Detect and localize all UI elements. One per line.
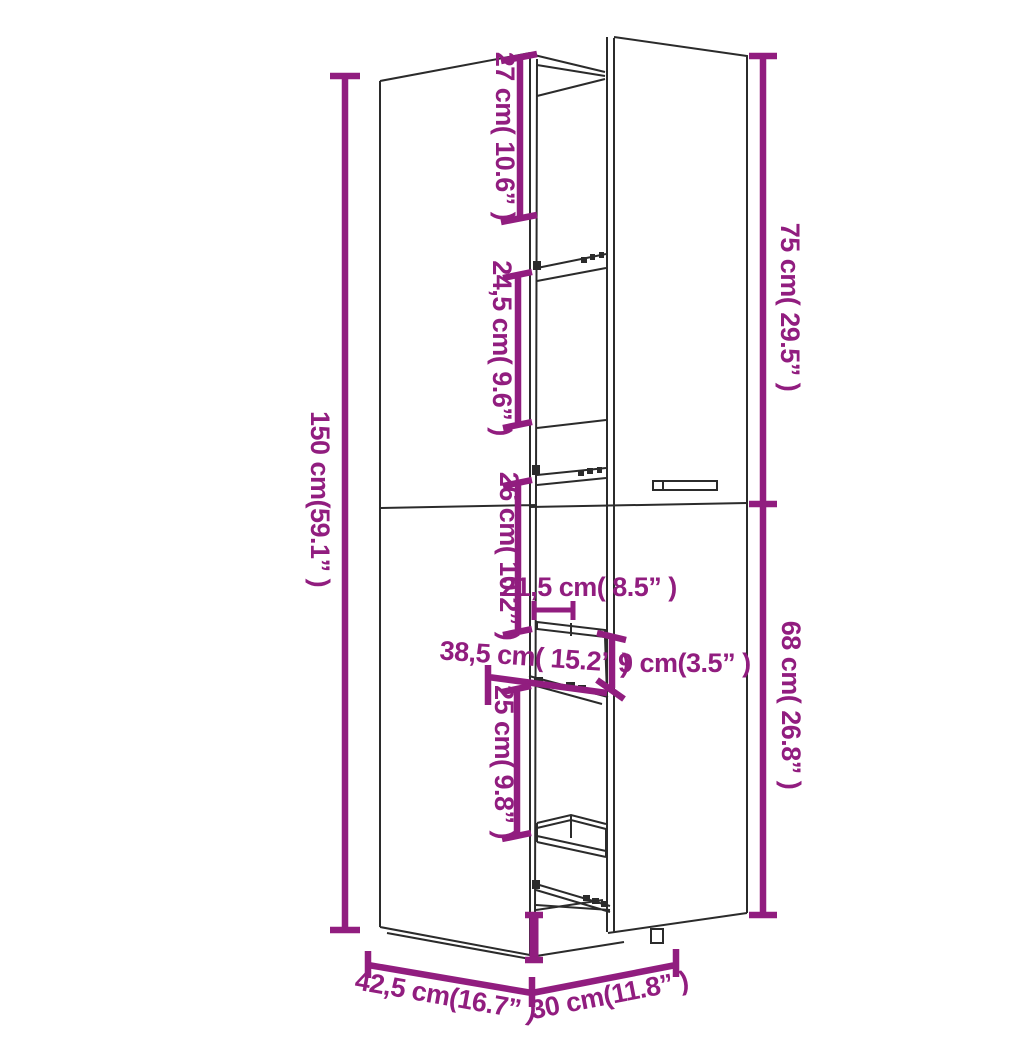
door-outline: [607, 37, 747, 933]
cabinet-dimension-diagram: 150 cm(59.1” ) 27 cm( 10.6” ) 24,5 cm( 9…: [40, 16, 1024, 1040]
slide-hardware: [597, 467, 602, 473]
shelf-top-slide: [537, 254, 606, 281]
dim-label-30: 30 cm(11.8” ): [528, 965, 691, 1025]
slide-hardware: [532, 880, 540, 889]
cabinet-line-art: [380, 37, 747, 959]
dim-label-150: 150 cm(59.1” ): [305, 411, 335, 587]
slide-hardware: [532, 465, 540, 475]
slide-hardware: [581, 257, 587, 263]
dim-line-68: [749, 504, 777, 915]
slide-hardware: [592, 898, 599, 904]
slide-hardware: [578, 470, 584, 476]
slide-hardware: [599, 252, 604, 258]
dim-label-26: 26 cm( 10.2” ): [494, 472, 524, 641]
shelf-middle: [537, 420, 606, 428]
dimension-lines: [330, 54, 777, 1007]
dim-label-68: 68 cm( 26.8” ): [776, 621, 806, 790]
slide-hardware: [533, 261, 541, 270]
shelf-mid-slide: [537, 468, 606, 485]
slide-hardware: [590, 254, 595, 260]
slide-hardware: [583, 895, 590, 901]
dim-label-75: 75 cm( 29.5” ): [775, 223, 805, 392]
dim-label-9: 9 cm(3.5” ): [618, 648, 751, 678]
dim-label-27: 27 cm( 10.6” ): [490, 52, 520, 221]
dim-line-21-5: [534, 601, 573, 620]
slide-hardware: [587, 468, 593, 474]
floor-edge: [530, 942, 624, 957]
carcass-split-line: [530, 503, 747, 507]
dim-label-24-5: 24,5 cm( 9.6” ): [487, 260, 517, 436]
dim-label-21-5: 21,5 cm( 8.5” ): [501, 572, 677, 602]
dim-label-42-5: 42,5 cm(16.7” ): [353, 965, 539, 1026]
dim-label-25: 25 cm( 9.8” ): [489, 685, 519, 839]
drawer-rim: [537, 622, 605, 637]
diagram-svg: 150 cm(59.1” ) 27 cm( 10.6” ) 24,5 cm( 9…: [40, 16, 1024, 1040]
dim-line-75: [749, 56, 777, 504]
pullout-basket: [537, 815, 606, 857]
door-foot: [651, 929, 663, 943]
